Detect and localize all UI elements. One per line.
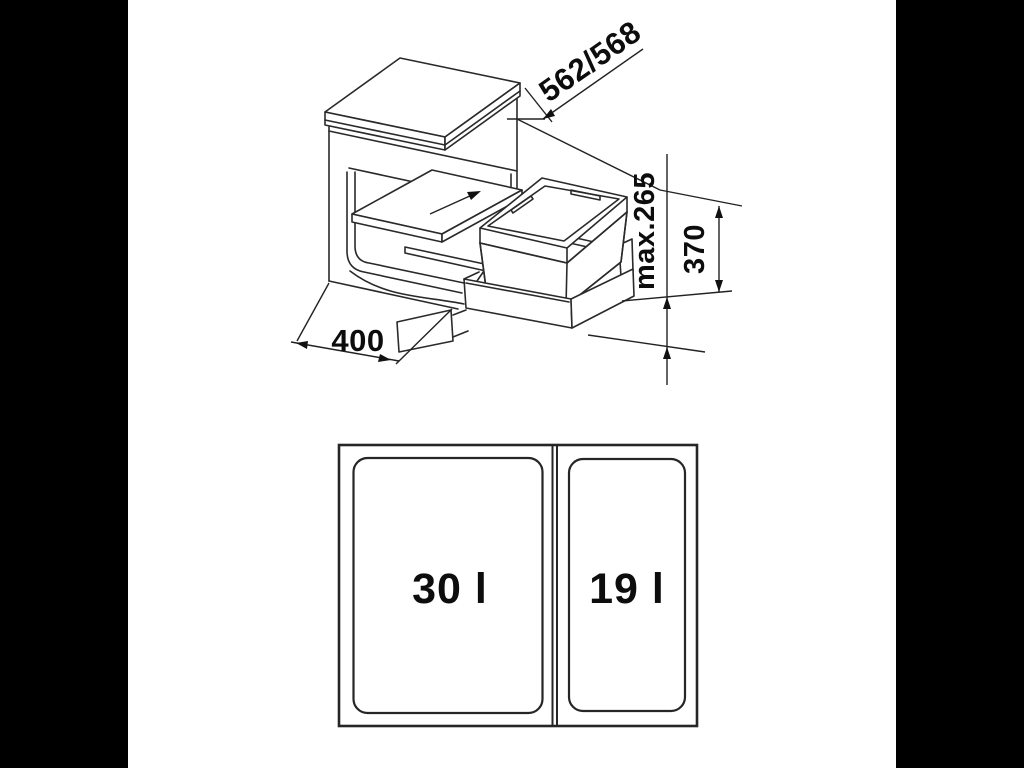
- technical-drawing: 562/568 max.265 370 400: [128, 0, 896, 768]
- isometric-view: 562/568 max.265 370 400: [291, 14, 742, 385]
- bin-divider: [553, 445, 558, 726]
- bin-left-label: 30 l: [412, 565, 488, 613]
- dim-width-label: 400: [331, 323, 384, 358]
- page: { "iso": { "dim_depth": { "label": "562/…: [0, 0, 1024, 768]
- right-matte: [896, 0, 1024, 768]
- dim-max-height-label: max.265: [629, 172, 661, 290]
- bin-right-label: 19 l: [589, 565, 665, 613]
- left-matte: [0, 0, 128, 768]
- top-view: 30 l 19 l: [339, 445, 697, 726]
- dim-unit-height-label: 370: [679, 224, 711, 274]
- dimension-depth: 562/568: [507, 14, 647, 122]
- dim-depth-label: 562/568: [533, 14, 648, 109]
- drawing-canvas: 562/568 max.265 370 400: [128, 0, 896, 768]
- slide-rails: [405, 247, 489, 281]
